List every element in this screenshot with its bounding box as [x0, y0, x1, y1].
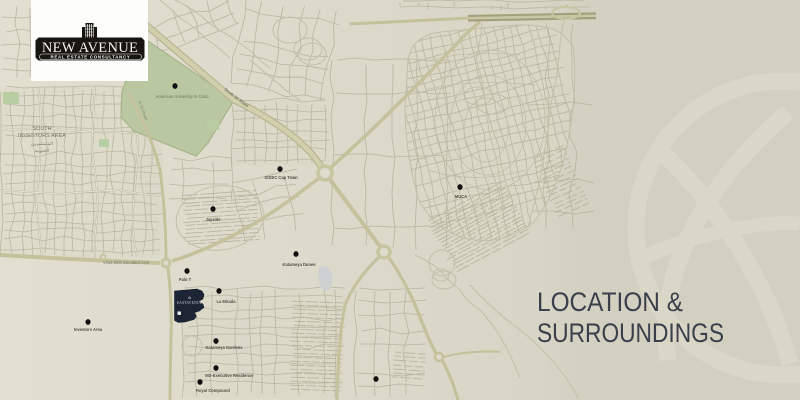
svg-text:NEW AVENUE: NEW AVENUE — [42, 40, 138, 56]
svg-text:Royal Compound: Royal Compound — [196, 388, 230, 393]
svg-text:Jayside: Jayside — [205, 217, 221, 222]
svg-text:La Mirada: La Mirada — [216, 299, 236, 304]
svg-text:MUCA: MUCA — [455, 194, 467, 199]
svg-text:✿: ✿ — [188, 296, 191, 300]
svg-text:INVESTORS AREA: INVESTORS AREA — [18, 133, 66, 139]
svg-text:SOUTH: SOUTH — [32, 126, 51, 132]
svg-text:Investors Area: Investors Area — [74, 327, 103, 332]
svg-text:Vista 90th Elevated Axis: Vista 90th Elevated Axis — [103, 260, 149, 265]
svg-text:Katameya Dunes: Katameya Dunes — [283, 262, 317, 267]
svg-text:Katameya Gardens: Katameya Gardens — [205, 345, 243, 350]
svg-text:SODIC Cap Town: SODIC Cap Town — [264, 175, 298, 180]
svg-text:VID-Executive Residence: VID-Executive Residence — [205, 373, 255, 378]
svg-text:SURROUNDINGS: SURROUNDINGS — [537, 318, 724, 348]
svg-text:LOCATION &: LOCATION & — [537, 287, 683, 317]
svg-text:American University in Cairo: American University in Cairo — [156, 94, 209, 99]
svg-text:EASTAVENUE: EASTAVENUE — [177, 301, 203, 305]
svg-text:REAL ESTATE CONSULTANCY: REAL ESTATE CONSULTANCY — [50, 55, 130, 60]
svg-text:Palo T: Palo T — [179, 277, 192, 282]
